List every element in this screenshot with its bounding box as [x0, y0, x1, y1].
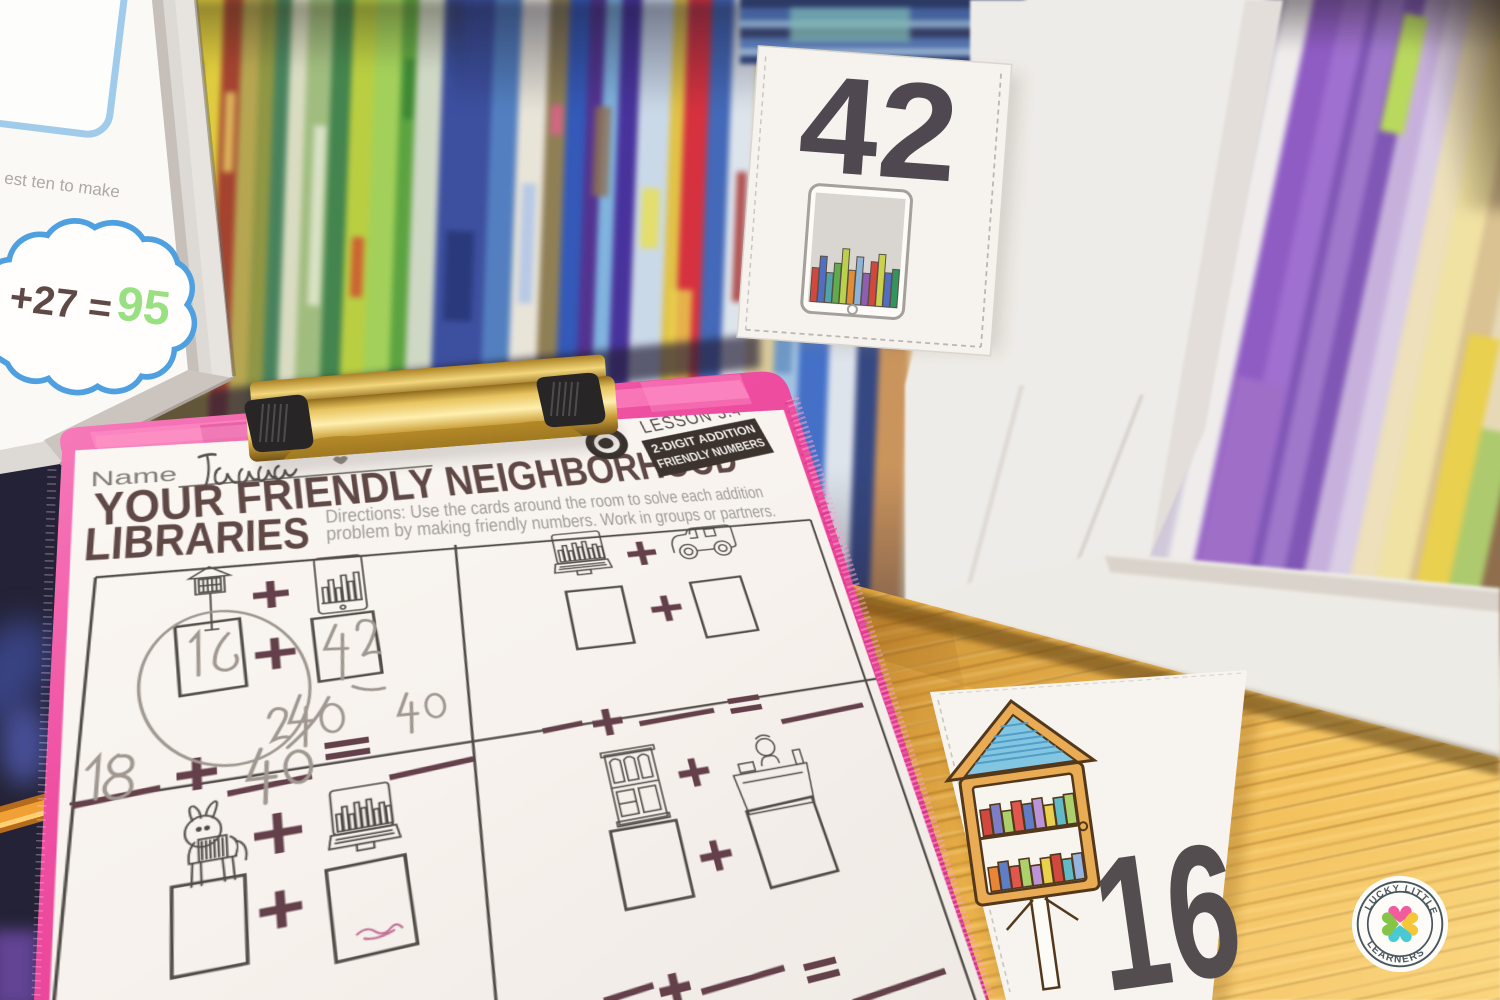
- svg-text:16: 16: [1083, 802, 1253, 1000]
